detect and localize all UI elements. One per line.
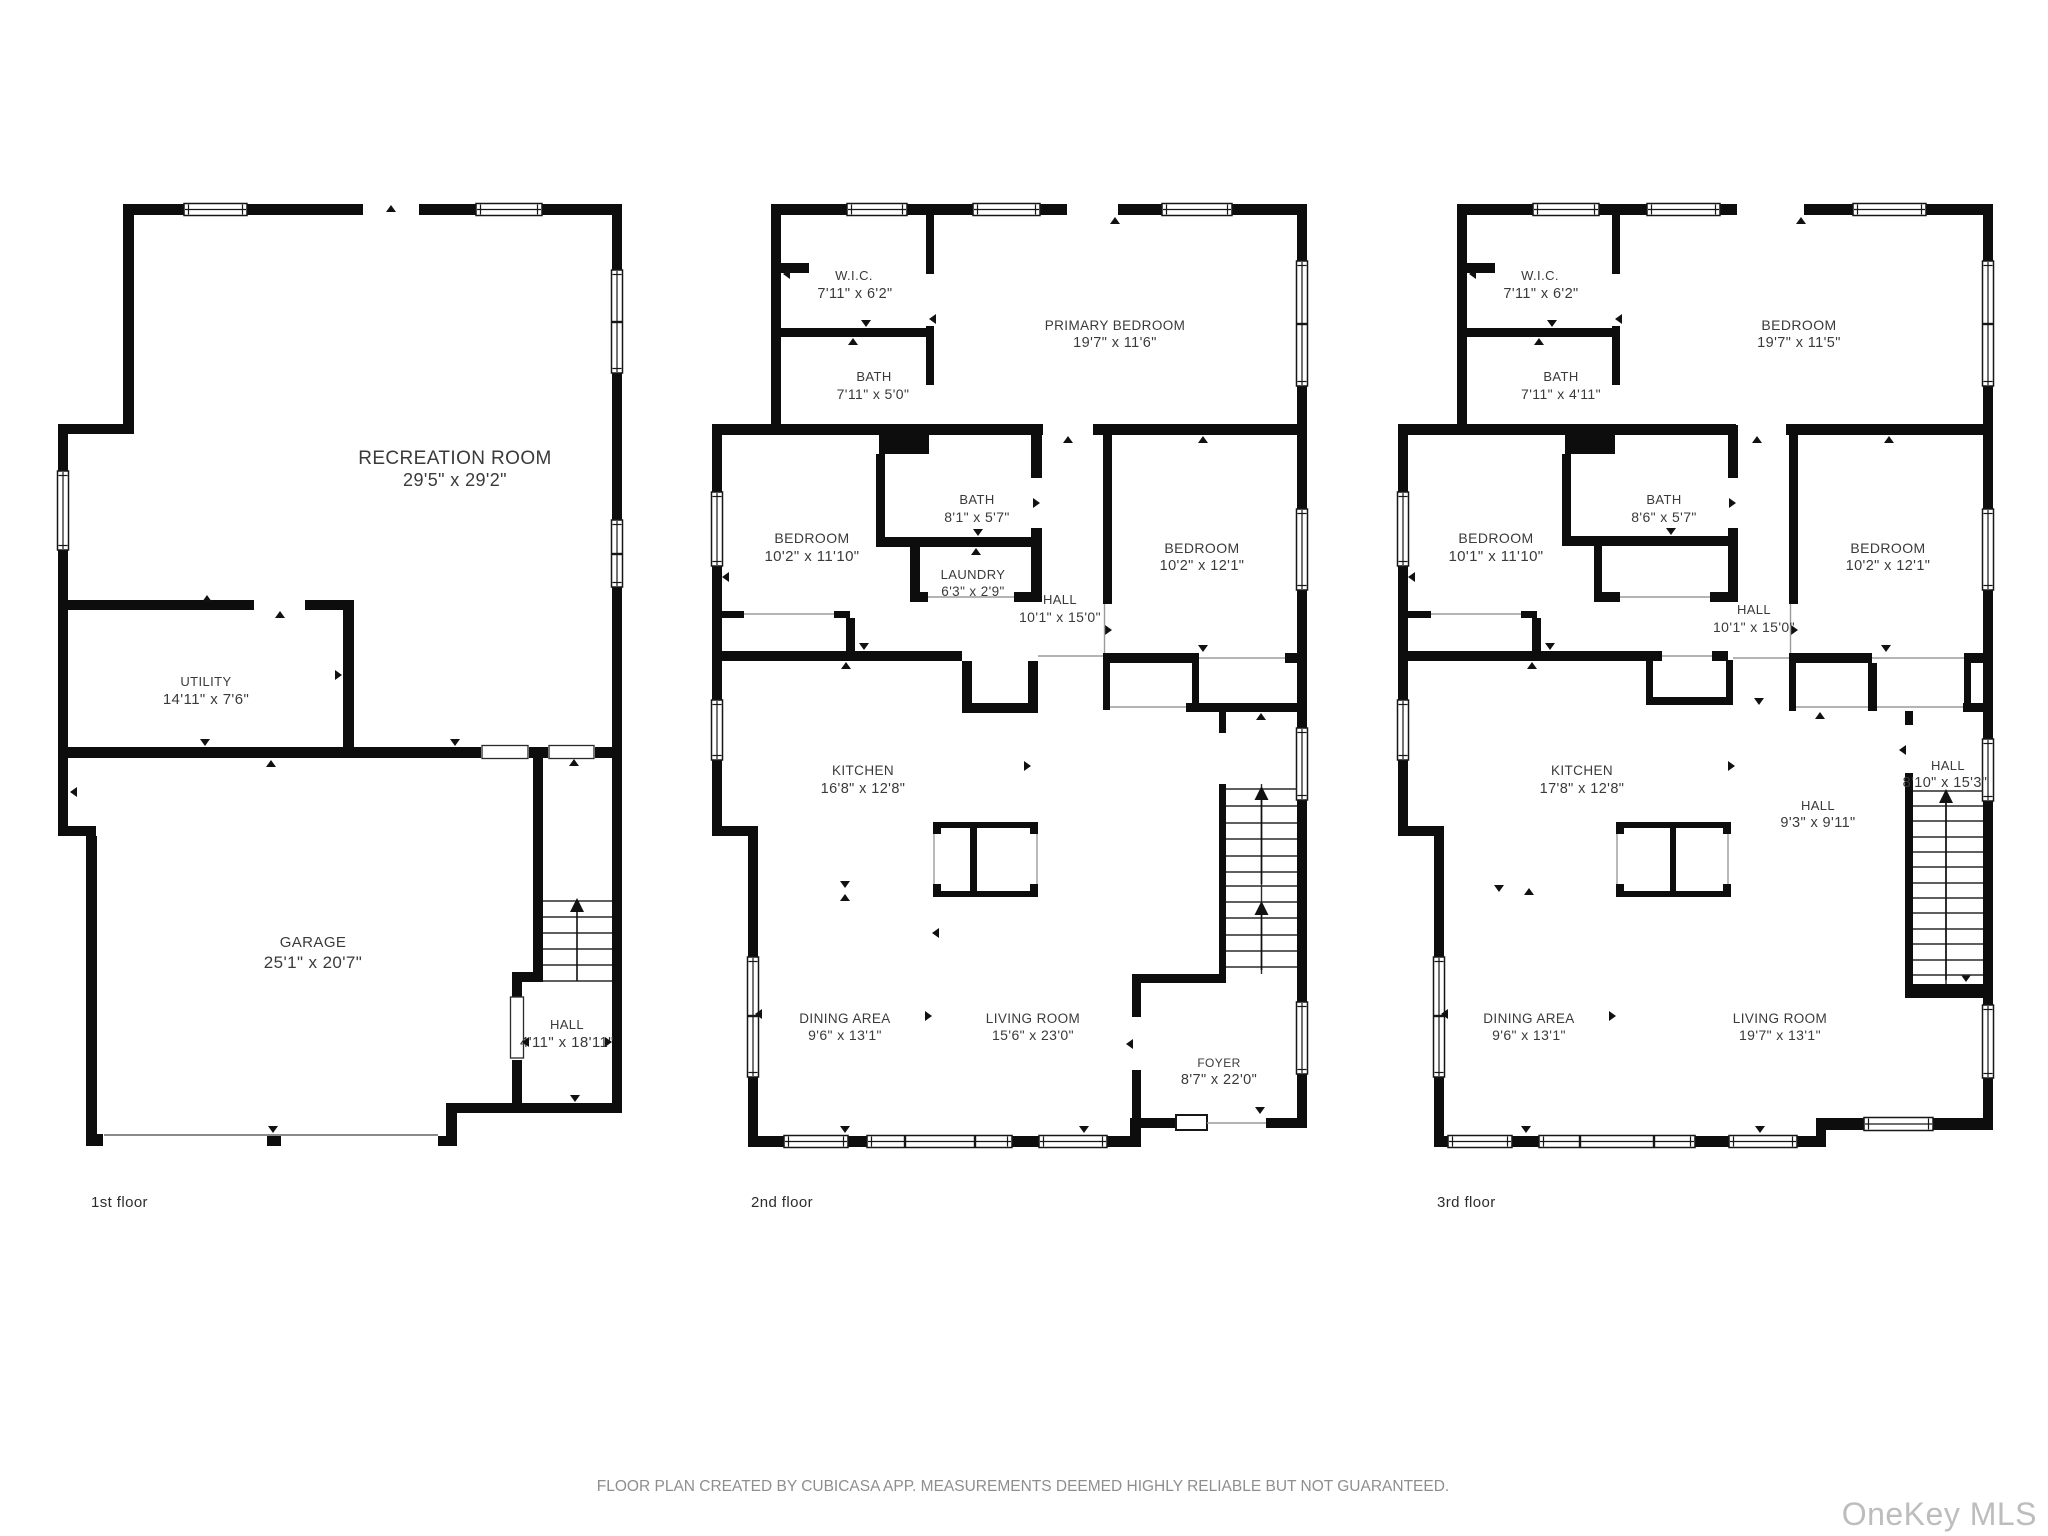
- svg-text:17'8" x 12'8": 17'8" x 12'8": [1540, 781, 1625, 797]
- svg-text:7'11" x 5'0": 7'11" x 5'0": [837, 386, 910, 402]
- svg-text:14'11" x 7'6": 14'11" x 7'6": [163, 691, 249, 708]
- svg-text:10'1" x 15'0": 10'1" x 15'0": [1713, 619, 1795, 635]
- svg-text:UTILITY: UTILITY: [180, 674, 231, 689]
- svg-text:KITCHEN: KITCHEN: [1551, 763, 1613, 778]
- svg-text:4'11" x 18'11": 4'11" x 18'11": [520, 1034, 614, 1051]
- svg-text:BEDROOM: BEDROOM: [1761, 317, 1836, 333]
- svg-text:BEDROOM: BEDROOM: [1164, 540, 1239, 556]
- svg-text:BEDROOM: BEDROOM: [774, 530, 849, 546]
- svg-text:1st floor: 1st floor: [91, 1194, 148, 1211]
- svg-text:7'11" x 6'2": 7'11" x 6'2": [817, 286, 892, 302]
- svg-text:FLOOR PLAN CREATED BY CUBICASA: FLOOR PLAN CREATED BY CUBICASA APP. MEAS…: [597, 1478, 1449, 1495]
- svg-text:3rd floor: 3rd floor: [1437, 1194, 1496, 1211]
- svg-text:BATH: BATH: [1543, 369, 1578, 384]
- svg-text:16'8" x 12'8": 16'8" x 12'8": [821, 781, 906, 797]
- svg-text:15'6" x 23'0": 15'6" x 23'0": [992, 1027, 1074, 1043]
- svg-text:19'7" x 11'6": 19'7" x 11'6": [1073, 335, 1157, 351]
- svg-text:10'2" x 12'1": 10'2" x 12'1": [1160, 558, 1245, 574]
- svg-text:10'2" x 12'1": 10'2" x 12'1": [1846, 558, 1931, 574]
- svg-text:W.I.C.: W.I.C.: [835, 268, 873, 283]
- svg-text:OneKey MLS: OneKey MLS: [1842, 1496, 2037, 1532]
- svg-text:7'11" x 6'2": 7'11" x 6'2": [1503, 286, 1578, 302]
- svg-text:19'7" x 11'5": 19'7" x 11'5": [1757, 335, 1841, 351]
- svg-text:GARAGE: GARAGE: [280, 934, 347, 951]
- svg-text:HALL: HALL: [1801, 798, 1835, 813]
- svg-text:LIVING ROOM: LIVING ROOM: [986, 1011, 1080, 1026]
- svg-text:LAUNDRY: LAUNDRY: [941, 567, 1006, 582]
- svg-text:HALL: HALL: [550, 1017, 584, 1032]
- svg-text:8'1" x 5'7": 8'1" x 5'7": [944, 509, 1010, 525]
- svg-text:9'6" x 13'1": 9'6" x 13'1": [1492, 1027, 1566, 1043]
- svg-text:8'10" x 15'3": 8'10" x 15'3": [1903, 775, 1988, 791]
- svg-text:HALL: HALL: [1737, 602, 1771, 617]
- svg-text:BATH: BATH: [856, 369, 891, 384]
- svg-text:KITCHEN: KITCHEN: [832, 763, 894, 778]
- svg-text:PRIMARY BEDROOM: PRIMARY BEDROOM: [1045, 318, 1186, 333]
- svg-text:LIVING ROOM: LIVING ROOM: [1733, 1011, 1827, 1026]
- svg-text:BATH: BATH: [1646, 492, 1681, 507]
- svg-text:DINING AREA: DINING AREA: [1483, 1011, 1574, 1026]
- svg-text:10'2" x 11'10": 10'2" x 11'10": [764, 548, 859, 565]
- svg-text:2nd floor: 2nd floor: [751, 1194, 813, 1211]
- svg-text:8'6" x 5'7": 8'6" x 5'7": [1631, 509, 1697, 525]
- svg-text:W.I.C.: W.I.C.: [1521, 268, 1559, 283]
- svg-text:29'5" x 29'2": 29'5" x 29'2": [403, 470, 507, 490]
- svg-text:BATH: BATH: [959, 492, 994, 507]
- svg-text:BEDROOM: BEDROOM: [1850, 540, 1925, 556]
- svg-text:9'6" x 13'1": 9'6" x 13'1": [808, 1027, 882, 1043]
- svg-text:8'7" x 22'0": 8'7" x 22'0": [1181, 1072, 1257, 1088]
- svg-text:HALL: HALL: [1043, 592, 1077, 607]
- svg-text:19'7" x 13'1": 19'7" x 13'1": [1739, 1027, 1821, 1043]
- svg-text:25'1" x 20'7": 25'1" x 20'7": [264, 953, 362, 972]
- svg-text:7'11" x 4'11": 7'11" x 4'11": [1521, 386, 1601, 402]
- svg-text:DINING AREA: DINING AREA: [799, 1011, 890, 1026]
- svg-text:9'3" x 9'11": 9'3" x 9'11": [1780, 815, 1855, 831]
- svg-text:HALL: HALL: [1931, 758, 1965, 773]
- svg-text:RECREATION ROOM: RECREATION ROOM: [358, 448, 552, 469]
- svg-text:BEDROOM: BEDROOM: [1458, 530, 1533, 546]
- svg-text:6'3" x 2'9": 6'3" x 2'9": [941, 584, 1004, 599]
- svg-text:10'1" x 15'0": 10'1" x 15'0": [1019, 609, 1101, 625]
- svg-text:10'1" x 11'10": 10'1" x 11'10": [1448, 548, 1543, 565]
- svg-text:FOYER: FOYER: [1197, 1056, 1240, 1070]
